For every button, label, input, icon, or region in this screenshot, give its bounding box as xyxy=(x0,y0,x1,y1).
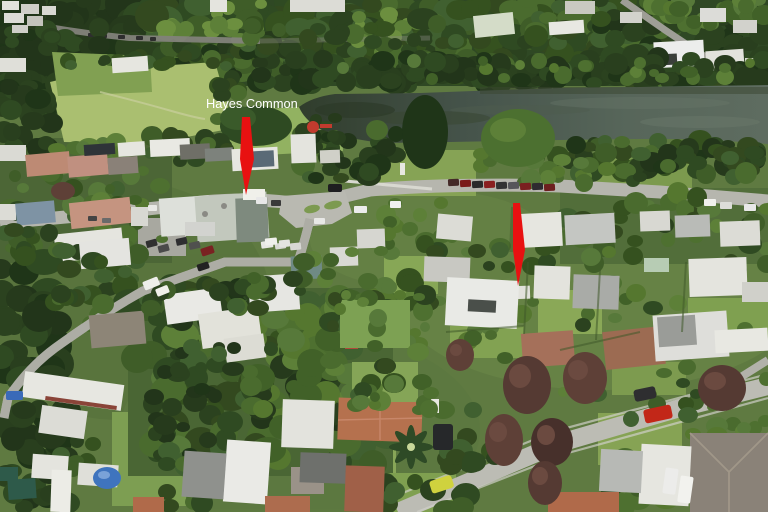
svg-text:Hayes Common: Hayes Common xyxy=(206,96,298,111)
